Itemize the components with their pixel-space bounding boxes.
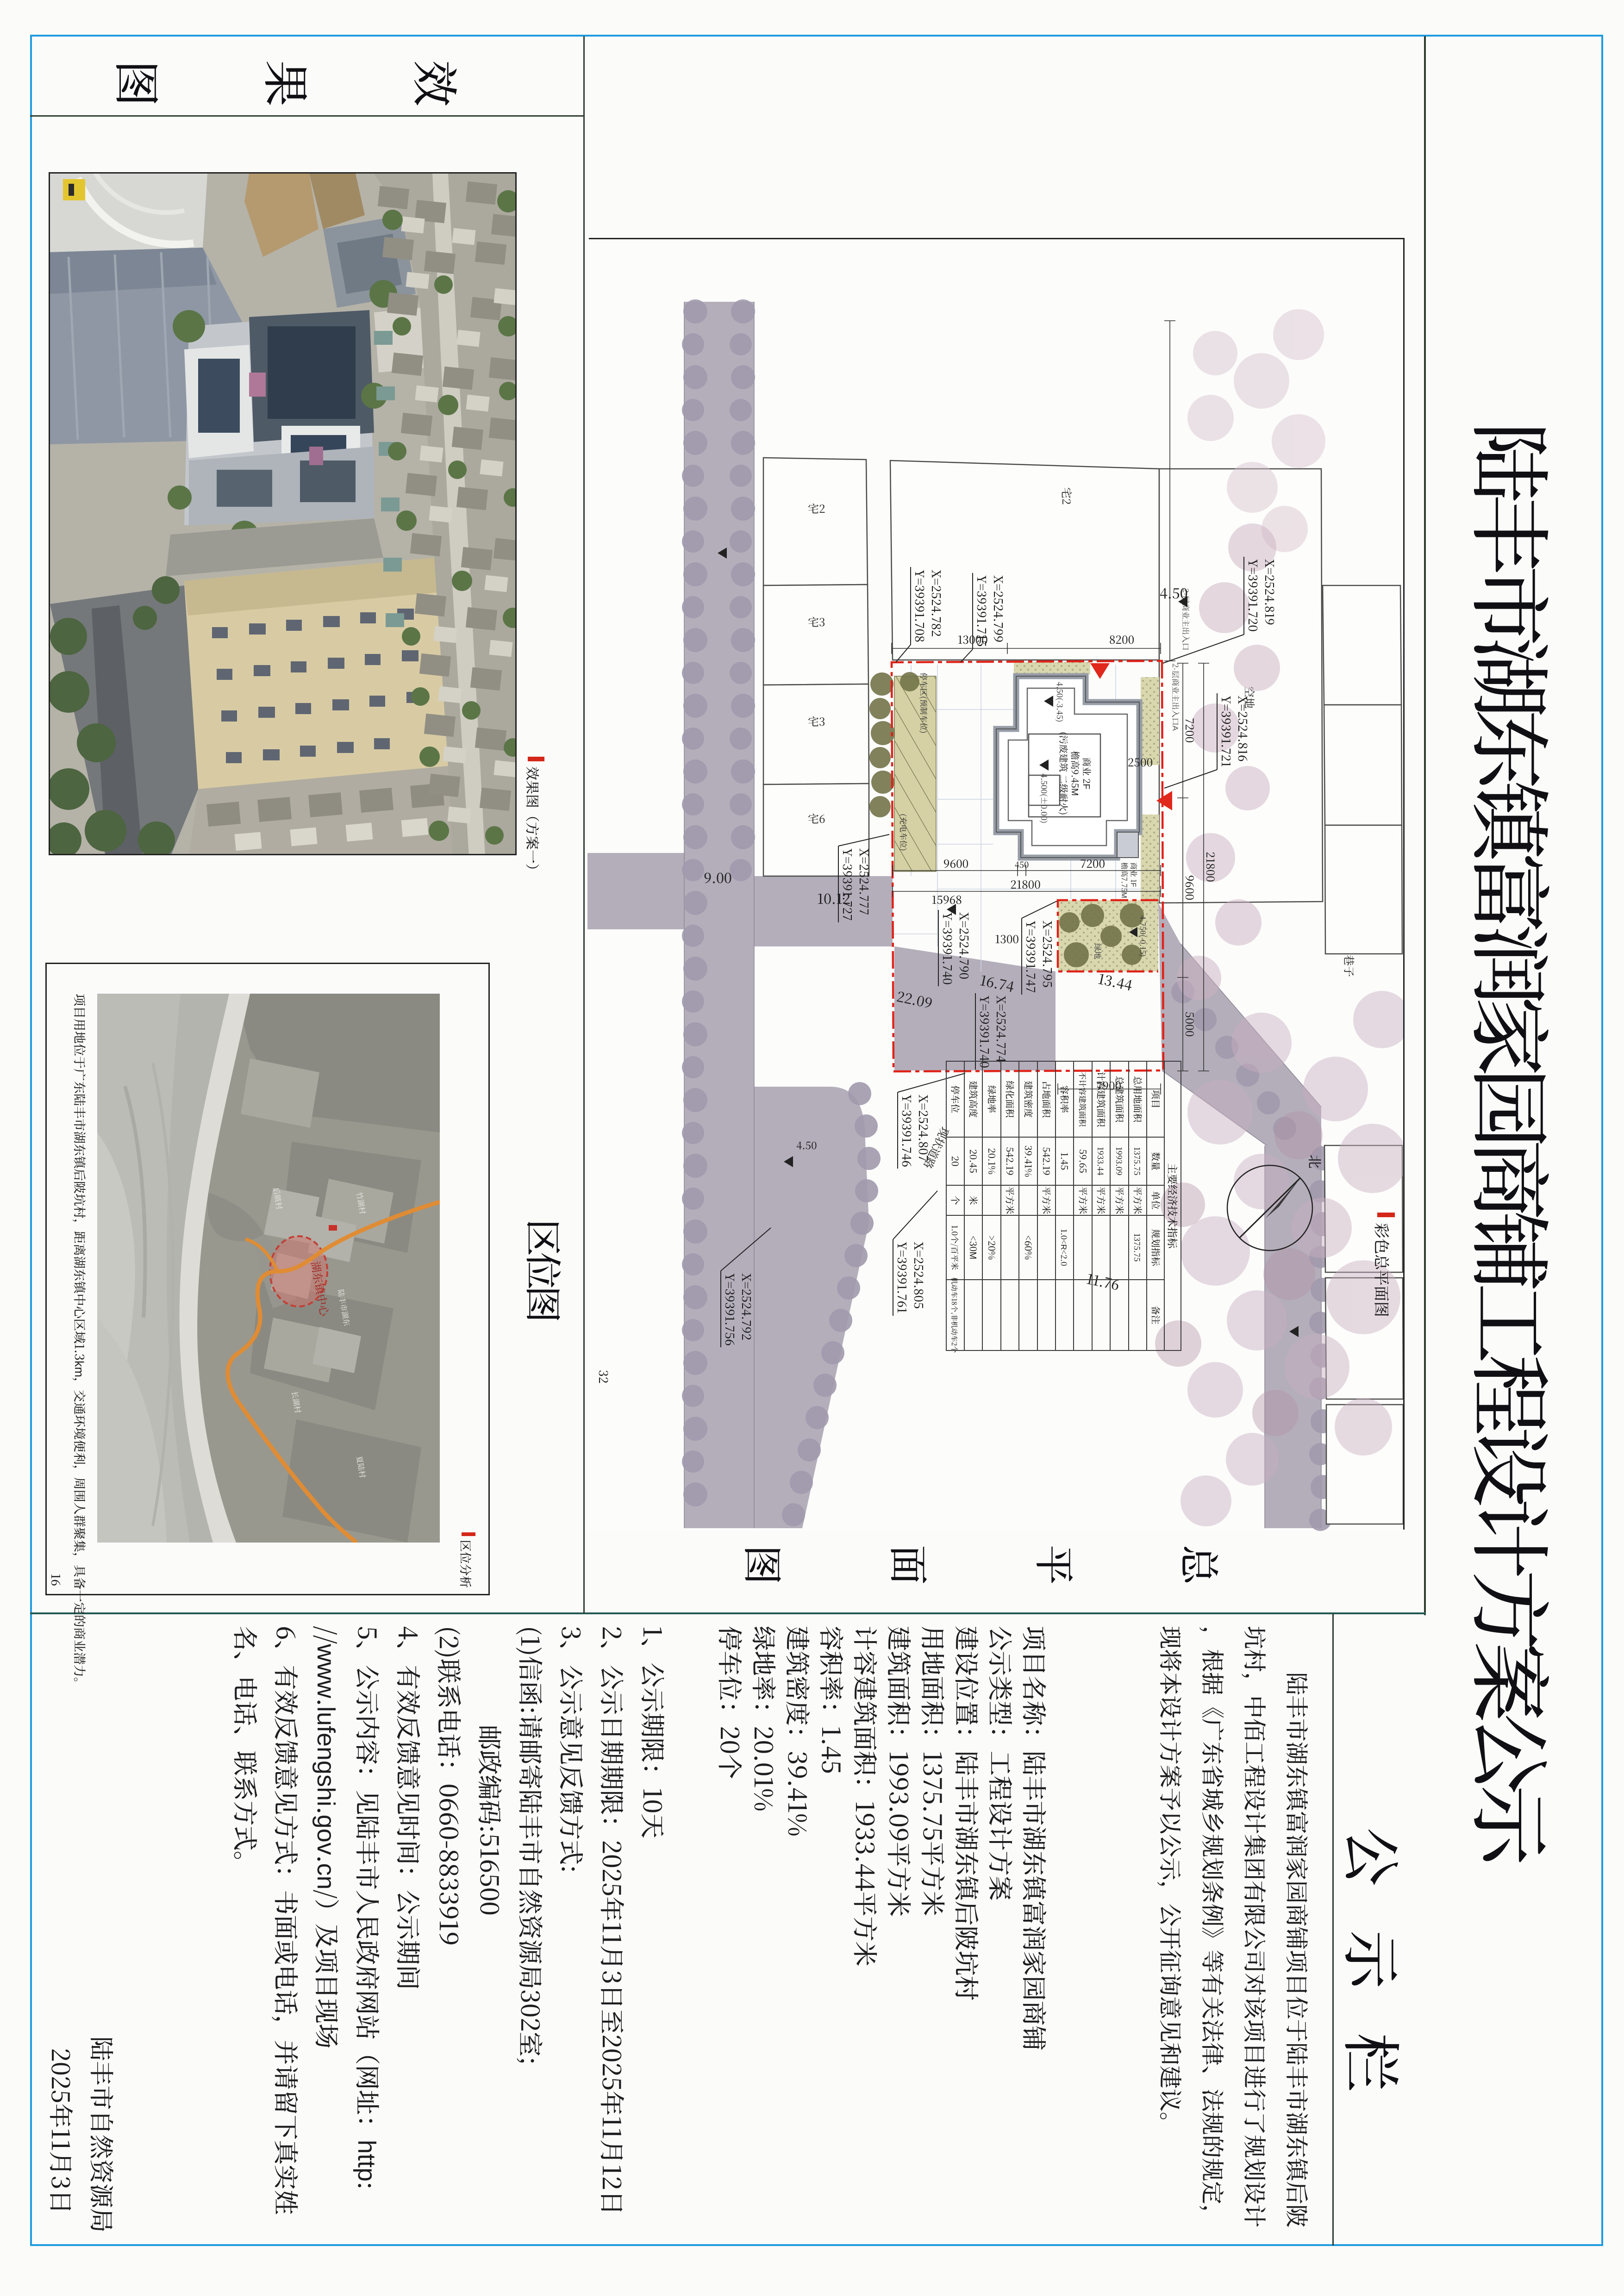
svg-text:1.45: 1.45 xyxy=(1058,1152,1072,1170)
svg-text:宅6: 宅6 xyxy=(808,810,825,826)
svg-text:Y=39391.740: Y=39391.740 xyxy=(939,912,956,985)
svg-text:平方米: 平方米 xyxy=(1077,1187,1090,1214)
svg-text:Y=39391.720: Y=39391.720 xyxy=(1245,559,1262,632)
svg-text:X=2524.799: X=2524.799 xyxy=(990,575,1007,642)
svg-text:5000: 5000 xyxy=(1182,1012,1199,1037)
svg-text:规划指标: 规划指标 xyxy=(1149,1229,1163,1266)
svg-text:Y=39391.727: Y=39391.727 xyxy=(839,848,856,921)
svg-text:绿化面积: 绿化面积 xyxy=(1004,1081,1017,1118)
svg-text:X=2524.782: X=2524.782 xyxy=(928,570,945,637)
svg-text:停车位: 停车位 xyxy=(949,1085,962,1113)
svg-text:450: 450 xyxy=(1015,859,1029,871)
svg-text:X=2524.805: X=2524.805 xyxy=(911,1242,928,1309)
svg-text:平方米: 平方米 xyxy=(1095,1187,1108,1214)
svg-text:<30M: <30M xyxy=(967,1236,981,1259)
svg-text:<60%: <60% xyxy=(1022,1235,1036,1260)
svg-text:平方米: 平方米 xyxy=(1131,1187,1145,1214)
svg-text:X=2524.795: X=2524.795 xyxy=(1039,921,1056,988)
svg-text:Y=39391.708: Y=39391.708 xyxy=(912,570,929,642)
svg-text:X=2524.790: X=2524.790 xyxy=(956,912,973,979)
svg-text:20.1%: 20.1% xyxy=(986,1148,999,1174)
svg-text:平方米: 平方米 xyxy=(1113,1187,1127,1214)
svg-text:X=2524.816: X=2524.816 xyxy=(1235,696,1252,762)
svg-text:59.65: 59.65 xyxy=(1077,1149,1090,1173)
svg-text:X=2524.774: X=2524.774 xyxy=(993,996,1010,1063)
svg-text:绿地: 绿地 xyxy=(1093,943,1104,959)
svg-text:主要经济技术指标: 主要经济技术指标 xyxy=(1165,1164,1181,1249)
svg-text:1300: 1300 xyxy=(995,930,1019,946)
svg-text:机动车18个,非机动车2个: 机动车18个,非机动车2个 xyxy=(949,1277,959,1353)
svg-text:宅2: 宅2 xyxy=(808,500,825,516)
svg-text:Y=39391.756: Y=39391.756 xyxy=(722,1273,739,1346)
svg-text:7200: 7200 xyxy=(1182,718,1199,743)
svg-text:(充电车位): (充电车位) xyxy=(898,814,910,851)
svg-text:20.45: 20.45 xyxy=(967,1149,981,1173)
svg-text:平方米: 平方米 xyxy=(1004,1187,1017,1214)
svg-text:宅3: 宅3 xyxy=(808,713,825,729)
svg-text:542.19: 542.19 xyxy=(1040,1147,1054,1175)
svg-text:X=2524.777: X=2524.777 xyxy=(856,848,873,915)
svg-text:容积率: 容积率 xyxy=(1058,1085,1072,1113)
svg-text:4.500(±0.00): 4.500(±0.00) xyxy=(1039,773,1050,823)
svg-text:7200: 7200 xyxy=(1080,855,1105,871)
svg-text:1375.75: 1375.75 xyxy=(1132,1147,1143,1175)
svg-text:平方米: 平方米 xyxy=(1040,1187,1054,1214)
svg-text:15968: 15968 xyxy=(931,891,962,907)
svg-text:总建筑面积: 总建筑面积 xyxy=(1113,1076,1127,1122)
svg-text:米: 米 xyxy=(967,1196,981,1205)
svg-text:宅2: 宅2 xyxy=(1059,487,1075,505)
svg-text:停车区(预制车位): 停车区(预制车位) xyxy=(918,672,930,734)
svg-text:Y=39391.740: Y=39391.740 xyxy=(976,996,993,1068)
svg-text:(污废建筑 二级耐火): (污废建筑 二级耐火) xyxy=(1057,732,1071,815)
svg-text:20: 20 xyxy=(949,1156,962,1167)
svg-text:数量: 数量 xyxy=(1149,1152,1163,1170)
svg-text:1375.75: 1375.75 xyxy=(1132,1233,1143,1262)
svg-text:计容建筑面积: 计容建筑面积 xyxy=(1095,1071,1108,1127)
svg-text:X=2524.807: X=2524.807 xyxy=(915,1095,932,1162)
svg-text:9600: 9600 xyxy=(1182,875,1199,900)
svg-text:建筑高度: 建筑高度 xyxy=(967,1081,981,1118)
svg-text:X=2524.819: X=2524.819 xyxy=(1262,559,1279,625)
svg-text:8200: 8200 xyxy=(1109,631,1134,647)
svg-text:巷子: 巷子 xyxy=(1342,955,1358,977)
svg-text:个: 个 xyxy=(949,1196,962,1205)
svg-text:39.41%: 39.41% xyxy=(1022,1145,1036,1177)
svg-text:檐高7.75M: 檐高7.75M xyxy=(1119,862,1130,898)
svg-text:9.00: 9.00 xyxy=(704,867,732,887)
svg-text:4.50(-3.45): 4.50(-3.45) xyxy=(1055,682,1066,722)
svg-text:21800: 21800 xyxy=(1203,852,1219,882)
svg-text:Y=39391.715: Y=39391.715 xyxy=(974,575,991,647)
svg-text:Y=39391.747: Y=39391.747 xyxy=(1023,921,1040,993)
svg-text:绿地率: 绿地率 xyxy=(986,1085,999,1113)
svg-text:X=2524.792: X=2524.792 xyxy=(738,1273,756,1340)
svg-text:Y=39391.761: Y=39391.761 xyxy=(894,1242,911,1313)
svg-text:单位: 单位 xyxy=(1149,1191,1163,1210)
svg-text:占地面积: 占地面积 xyxy=(1040,1081,1054,1118)
svg-text:2500: 2500 xyxy=(1128,753,1153,770)
svg-text:Y=39391.721: Y=39391.721 xyxy=(1218,696,1235,767)
svg-text:总用地面积: 总用地面积 xyxy=(1131,1076,1145,1122)
svg-text:1933.44: 1933.44 xyxy=(1095,1147,1107,1176)
svg-text:>20%: >20% xyxy=(986,1235,999,1260)
svg-text:2-层商业主出入口A: 2-层商业主出入口A xyxy=(1170,663,1182,731)
svg-text:1.0个/百平米: 1.0个/百平米 xyxy=(949,1225,961,1270)
svg-text:宅3: 宅3 xyxy=(808,613,825,629)
svg-text:21800: 21800 xyxy=(1010,876,1041,892)
svg-text:不计容建筑面积: 不计容建筑面积 xyxy=(1077,1072,1089,1127)
svg-text:4.750(-0.15): 4.750(-0.15) xyxy=(1138,915,1149,957)
svg-text:9600: 9600 xyxy=(943,855,968,871)
svg-text:4.50: 4.50 xyxy=(796,1138,817,1152)
svg-text:备注: 备注 xyxy=(1149,1306,1163,1325)
svg-text:项目: 项目 xyxy=(1149,1090,1163,1108)
svg-text:1993.09: 1993.09 xyxy=(1114,1147,1125,1176)
svg-text:建筑密度: 建筑密度 xyxy=(1022,1081,1036,1118)
svg-text:Y=39391.746: Y=39391.746 xyxy=(899,1095,916,1167)
svg-text:北: 北 xyxy=(1305,1155,1326,1169)
svg-text:1.0<R<2.0: 1.0<R<2.0 xyxy=(1059,1229,1070,1266)
svg-text:542.19: 542.19 xyxy=(1004,1147,1017,1175)
